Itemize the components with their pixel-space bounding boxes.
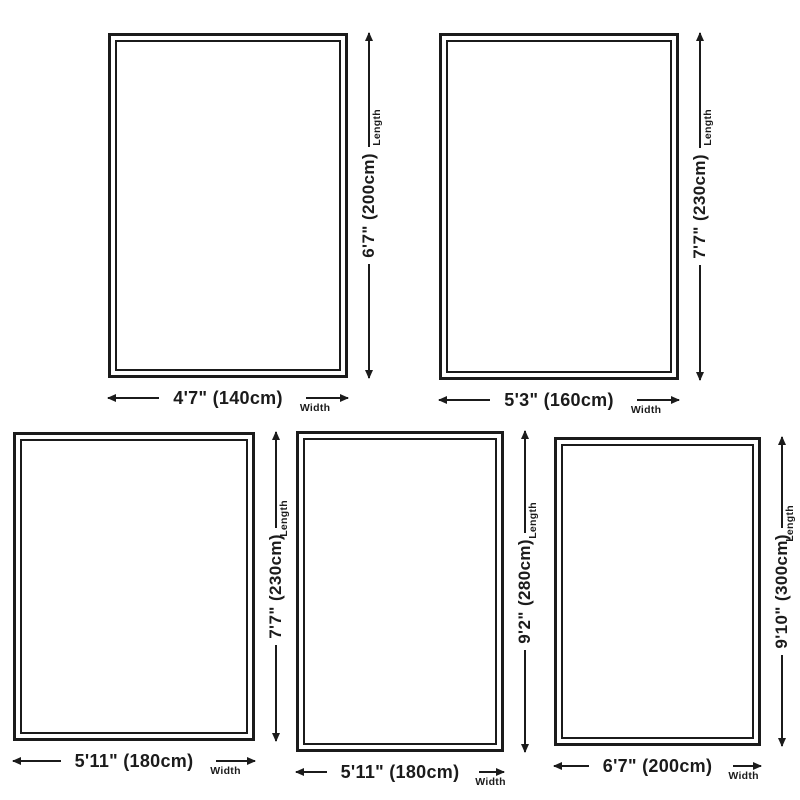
length-value: 9'10" (300cm) — [772, 534, 792, 649]
arrow-up-icon — [781, 437, 783, 528]
rug-inner-outline — [446, 40, 672, 373]
length-dimension: 9'10" (300cm) Length — [767, 437, 797, 746]
arrow-left-icon — [554, 765, 589, 767]
rug-panel-2: 7'7" (230cm) Length 5'3" (160cm) Width — [439, 33, 725, 420]
width-arrow-group: Width — [726, 751, 761, 781]
rug-size-diagram: 6'7" (200cm) Length 4'7" (140cm) Width 7… — [0, 0, 800, 800]
width-label: Width — [631, 404, 662, 416]
width-arrow-group: Width — [473, 757, 504, 787]
width-value: 6'7" (200cm) — [603, 756, 712, 777]
arrow-left-icon — [108, 397, 159, 399]
arrow-right-icon — [479, 771, 504, 773]
length-value: 7'7" (230cm) — [690, 154, 710, 259]
length-label: Length — [527, 502, 539, 539]
length-value: 7'7" (230cm) — [266, 534, 286, 639]
length-value: 9'2" (280cm) — [515, 539, 535, 644]
width-arrow-group: Width — [207, 746, 255, 776]
rug-outline — [554, 437, 761, 746]
width-dimension: 5'11" (180cm) Width — [296, 757, 504, 787]
arrow-up-icon — [368, 33, 370, 147]
arrow-up-icon — [699, 33, 701, 148]
rug-outline — [108, 33, 348, 378]
length-label: Length — [784, 505, 796, 542]
length-label: Length — [371, 109, 383, 146]
arrow-down-icon — [781, 655, 783, 746]
arrow-up-icon — [524, 431, 526, 533]
rug-panel-5: 9'10" (300cm) Length 6'7" (200cm) Width — [554, 437, 800, 786]
arrow-down-icon — [524, 650, 526, 752]
width-value: 5'3" (160cm) — [504, 390, 613, 411]
length-dimension: 7'7" (230cm) Length — [685, 33, 715, 380]
length-label: Length — [702, 109, 714, 146]
width-value: 5'11" (180cm) — [75, 751, 194, 772]
arrow-right-icon — [637, 399, 679, 401]
width-value: 4'7" (140cm) — [173, 388, 282, 409]
width-label: Width — [300, 402, 331, 414]
width-dimension: 4'7" (140cm) Width — [108, 383, 348, 413]
length-dimension: 9'2" (280cm) Length — [510, 431, 540, 752]
rug-inner-outline — [20, 439, 248, 734]
arrow-left-icon — [439, 399, 490, 401]
arrow-down-icon — [699, 265, 701, 380]
arrow-right-icon — [306, 397, 348, 399]
width-label: Width — [210, 765, 241, 777]
arrow-down-icon — [275, 645, 277, 741]
width-arrow-group: Width — [297, 383, 348, 413]
width-arrow-group: Width — [628, 385, 679, 415]
length-dimension: 6'7" (200cm) Length — [354, 33, 384, 378]
width-label: Width — [475, 776, 506, 788]
length-label: Length — [278, 500, 290, 537]
width-dimension: 5'3" (160cm) Width — [439, 385, 679, 415]
arrow-left-icon — [296, 771, 327, 773]
rug-inner-outline — [561, 444, 754, 739]
rug-panel-3: 7'7" (230cm) Length 5'11" (180cm) Width — [13, 432, 301, 781]
arrow-down-icon — [368, 264, 370, 378]
rug-inner-outline — [115, 40, 341, 371]
arrow-up-icon — [275, 432, 277, 528]
width-dimension: 5'11" (180cm) Width — [13, 746, 255, 776]
width-dimension: 6'7" (200cm) Width — [554, 751, 761, 781]
width-label: Width — [728, 770, 759, 782]
rug-outline — [439, 33, 679, 380]
length-value: 6'7" (200cm) — [359, 153, 379, 258]
arrow-right-icon — [733, 765, 762, 767]
width-value: 5'11" (180cm) — [341, 762, 460, 783]
length-dimension: 7'7" (230cm) Length — [261, 432, 291, 741]
arrow-left-icon — [13, 760, 61, 762]
rug-panel-1: 6'7" (200cm) Length 4'7" (140cm) Width — [108, 33, 394, 418]
rug-panel-4: 9'2" (280cm) Length 5'11" (180cm) Width — [296, 431, 550, 792]
rug-outline — [296, 431, 504, 752]
arrow-right-icon — [216, 760, 255, 762]
rug-inner-outline — [303, 438, 497, 745]
rug-outline — [13, 432, 255, 741]
